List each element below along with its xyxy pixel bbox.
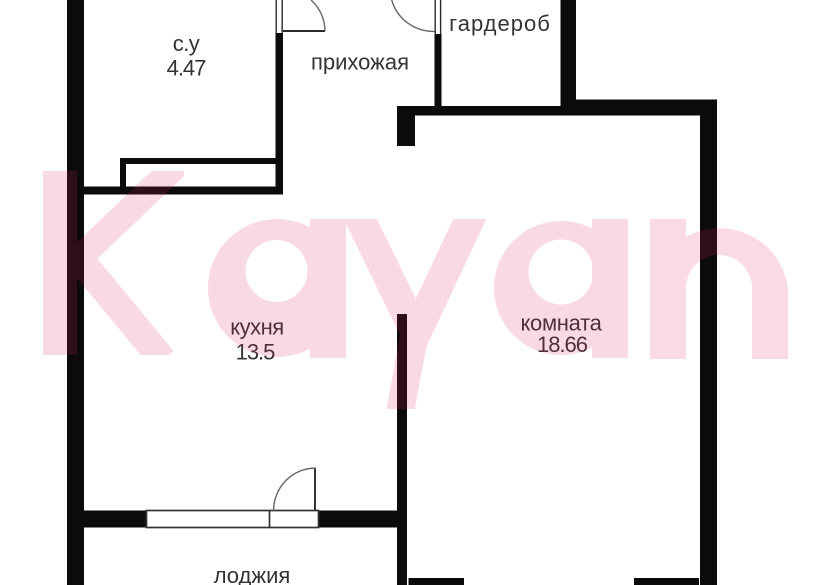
svg-text:с.у: с.у xyxy=(173,31,200,56)
svg-text:прихожая: прихожая xyxy=(311,50,409,75)
svg-text:лоджия: лоджия xyxy=(214,563,291,585)
svg-text:гардероб: гардероб xyxy=(449,11,551,36)
svg-text:4.47: 4.47 xyxy=(167,56,207,81)
